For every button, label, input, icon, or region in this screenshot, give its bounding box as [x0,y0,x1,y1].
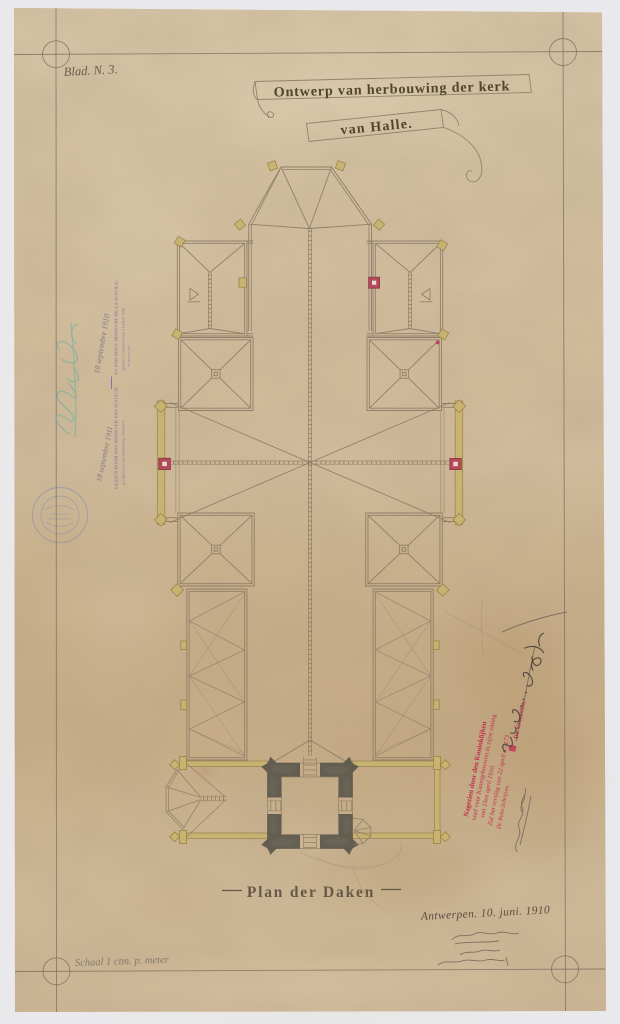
svg-text:GEZIEN DOOR ONS MINISTER VAN J: GEZIEN DOOR ONS MINISTER VAN JUSTITIE [115,387,120,489]
svg-text:approuve conformement a l arti: approuve conformement a l article final [121,307,126,371]
svg-text:Blad. N. 3.: Blad. N. 3. [63,62,117,79]
svg-text:Plan der Daken: Plan der Daken [247,884,375,901]
svg-text:goedgekeurd overeenkomstig slo: goedgekeurd overeenkomstig slotartikel [121,420,126,485]
svg-text:VU PAR NOUS, MINISTRE DE LA JU: VU PAR NOUS, MINISTRE DE LA JUSTICE, [115,280,120,375]
svg-text:du arrete royal: du arrete royal [127,345,131,367]
